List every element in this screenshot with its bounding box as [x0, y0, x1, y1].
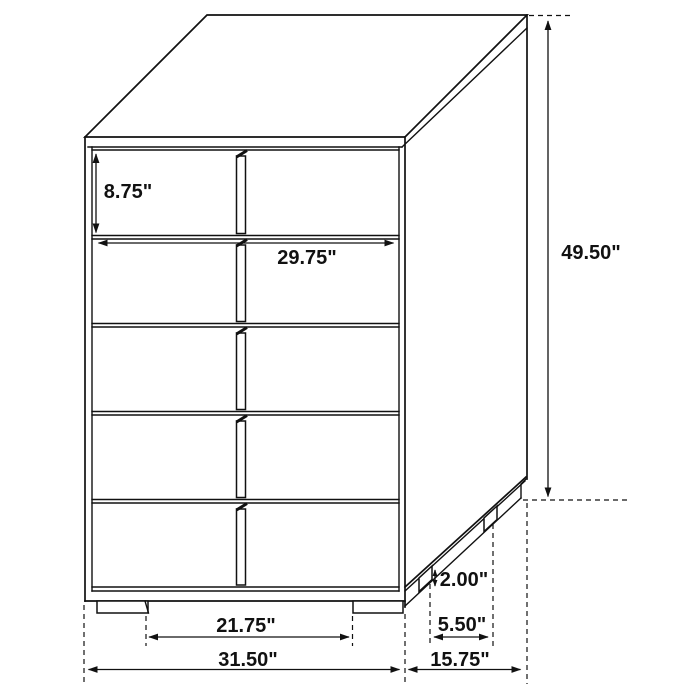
- label-overall-depth: 15.75": [430, 649, 490, 671]
- drawer-separator-1: [92, 236, 399, 240]
- label-base-height: 2.00": [440, 569, 488, 591]
- front-right-leg: [353, 601, 403, 613]
- dimension-labels: 8.75" 29.75" 49.50" 2.00" 5.50" 21.75" 3…: [104, 181, 621, 671]
- drawer-separator-3: [92, 412, 399, 416]
- chest-front-legs: [97, 601, 403, 613]
- label-overall-height: 49.50": [561, 242, 621, 264]
- label-drawer-width: 29.75": [277, 247, 337, 269]
- chest-top-face: [85, 15, 527, 147]
- front-left-leg: [97, 601, 148, 613]
- label-overall-width: 31.50": [218, 649, 278, 671]
- drawer-5-handle: [237, 509, 246, 585]
- drawer-1-handle: [237, 156, 246, 234]
- drawer-2-handle: [237, 245, 246, 322]
- top-face-outline: [85, 15, 527, 137]
- chest-side-face: [405, 15, 527, 606]
- drawer-separator-2: [92, 324, 399, 328]
- drawer-separator-4: [92, 500, 399, 504]
- drawer-4-handle: [237, 421, 246, 498]
- label-front-leg-gap: 21.75": [216, 615, 276, 637]
- label-side-leg-gap: 5.50": [438, 614, 486, 636]
- dimension-diagram-canvas: 8.75" 29.75" 49.50" 2.00" 5.50" 21.75" 3…: [0, 0, 700, 700]
- top-panel-side-inner-edge: [402, 28, 527, 147]
- label-drawer-height: 8.75": [104, 181, 152, 203]
- drawer-3-handle: [237, 333, 246, 410]
- extension-lines: [84, 16, 631, 685]
- chest-dimension-drawing: 8.75" 29.75" 49.50" 2.00" 5.50" 21.75" 3…: [0, 0, 700, 700]
- drawer-handles: [237, 151, 248, 586]
